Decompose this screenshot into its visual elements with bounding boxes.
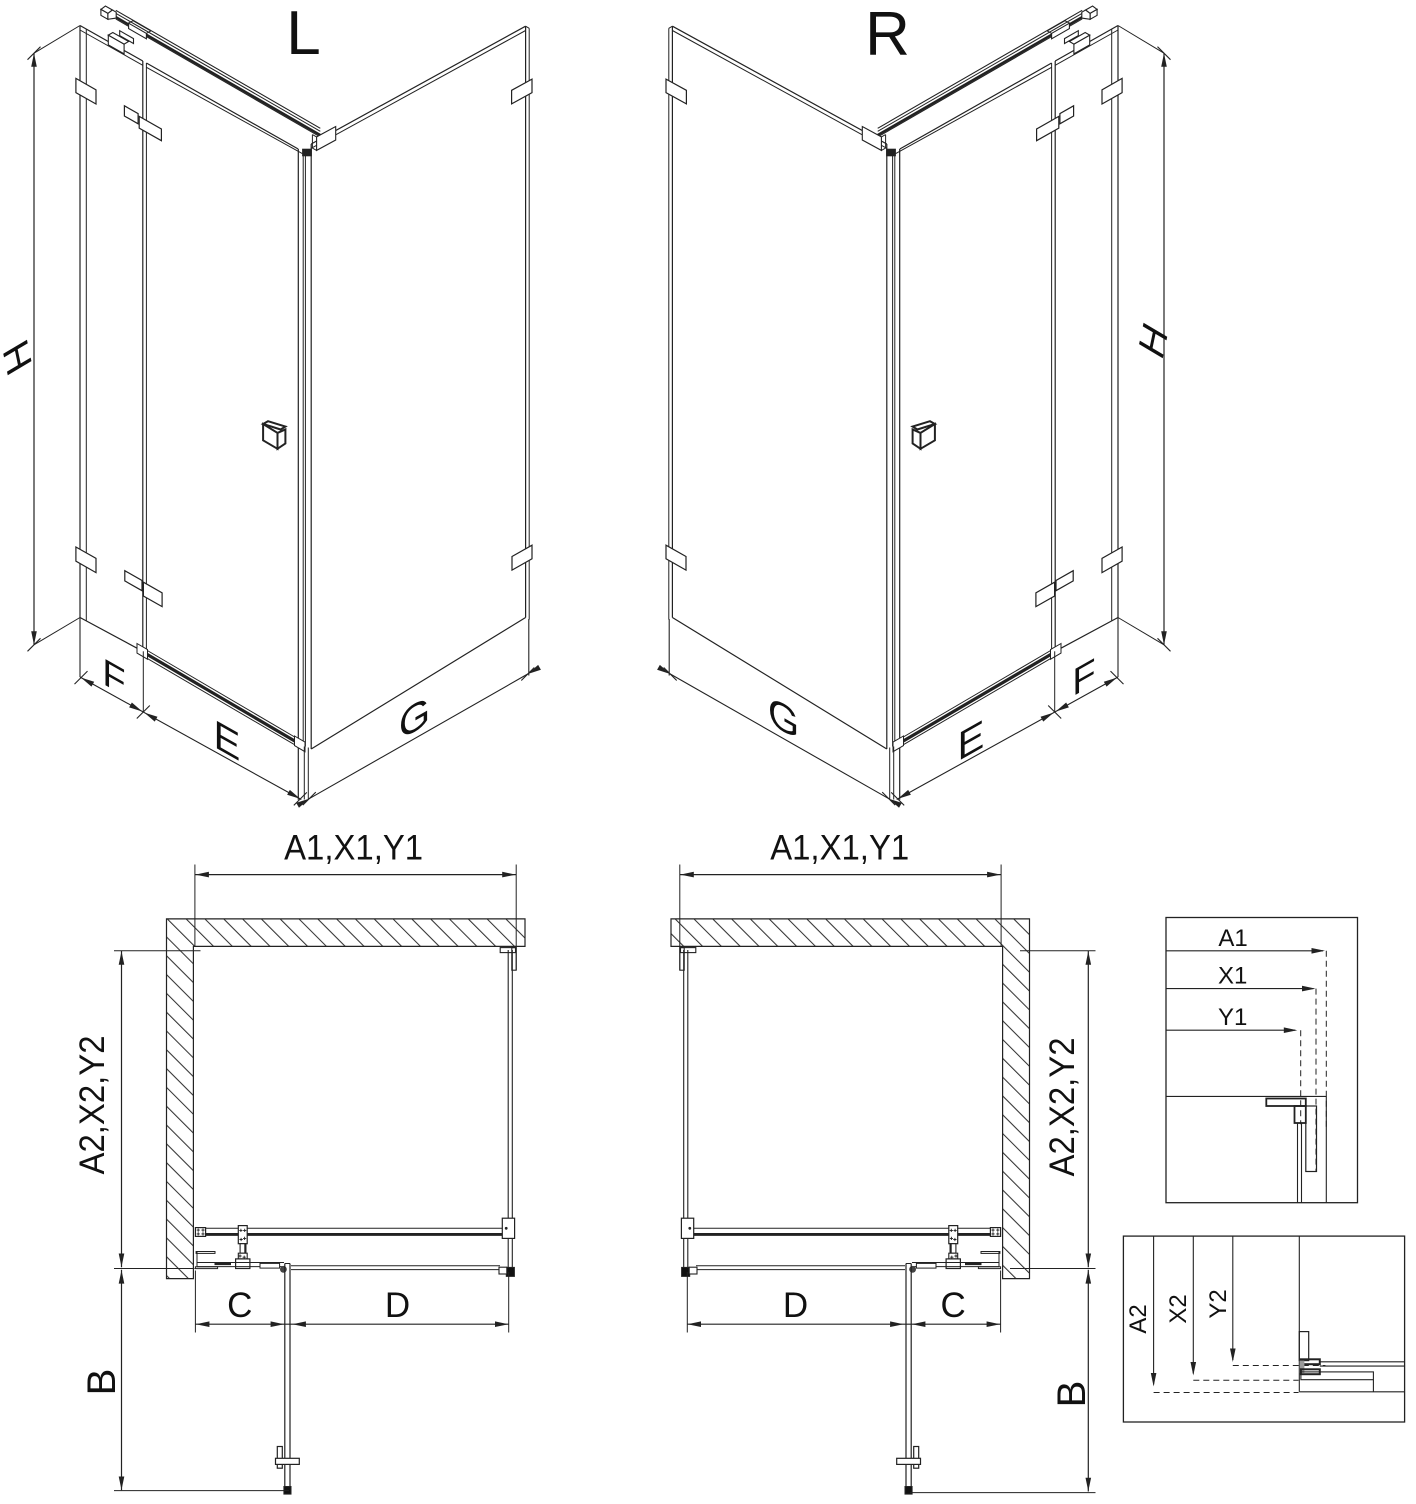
svg-text:X1: X1	[1218, 963, 1247, 990]
svg-text:Y2: Y2	[1205, 1289, 1232, 1318]
svg-text:C: C	[227, 1286, 252, 1325]
svg-text:R: R	[865, 0, 910, 69]
svg-text:A2: A2	[1125, 1304, 1152, 1333]
svg-text:Y1: Y1	[1218, 1004, 1247, 1031]
svg-text:D: D	[385, 1286, 410, 1325]
svg-text:C: C	[941, 1286, 966, 1325]
svg-text:A2,X2,Y2: A2,X2,Y2	[1043, 1038, 1082, 1177]
svg-text:A2,X2,Y2: A2,X2,Y2	[73, 1036, 112, 1175]
svg-text:X2: X2	[1165, 1294, 1192, 1323]
svg-text:B: B	[1050, 1381, 1094, 1408]
svg-text:D: D	[783, 1286, 808, 1325]
svg-text:B: B	[80, 1369, 124, 1396]
svg-text:A1: A1	[1218, 925, 1247, 952]
svg-text:A1,X1,Y1: A1,X1,Y1	[284, 828, 423, 867]
svg-text:A1,X1,Y1: A1,X1,Y1	[770, 828, 909, 867]
svg-text:L: L	[286, 0, 320, 68]
